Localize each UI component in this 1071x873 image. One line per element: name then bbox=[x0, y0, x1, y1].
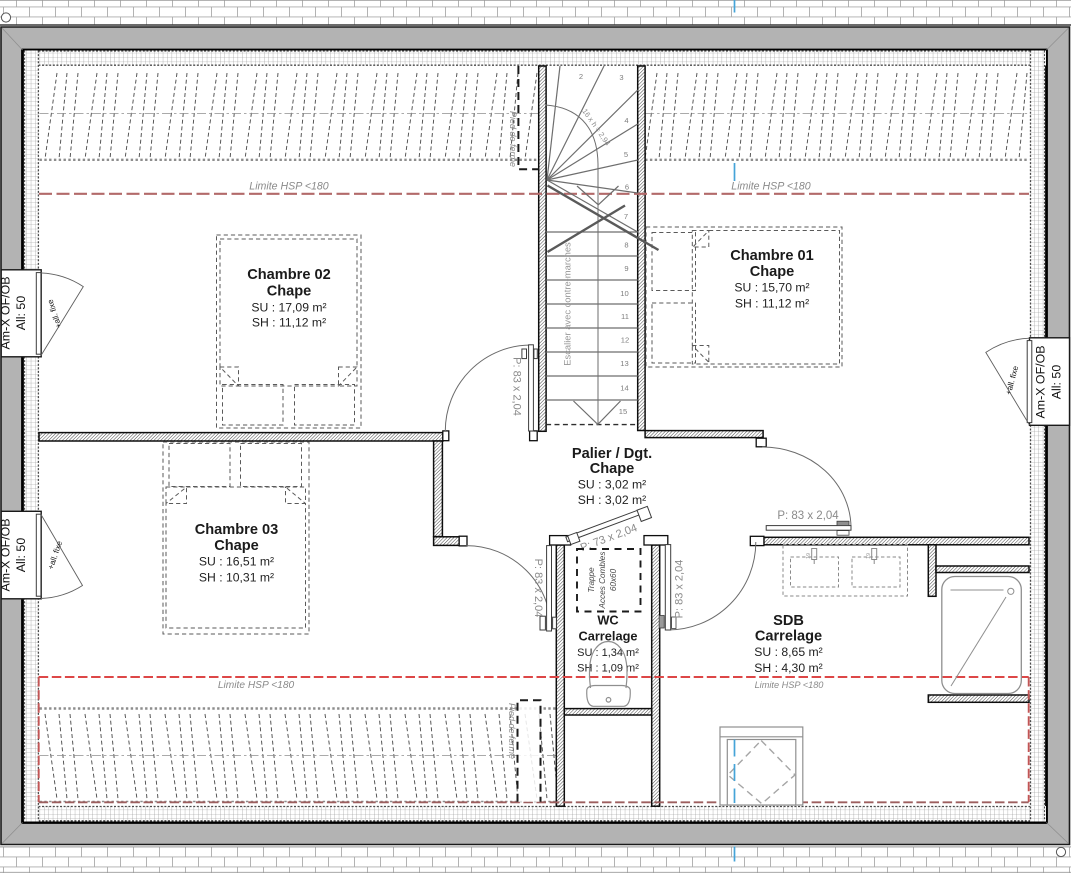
svg-text:SH : 10,31 m²: SH : 10,31 m² bbox=[199, 571, 274, 585]
svg-text:11: 11 bbox=[621, 312, 629, 321]
svg-text:Limite HSP <180: Limite HSP <180 bbox=[218, 680, 295, 691]
svg-text:Pied de ferme: Pied de ferme bbox=[507, 703, 517, 759]
svg-text:6: 6 bbox=[625, 183, 629, 192]
svg-text:Am-X OF/OB: Am-X OF/OB bbox=[0, 277, 13, 350]
svg-text:Chape: Chape bbox=[267, 284, 312, 300]
svg-text:Trappe: Trappe bbox=[587, 567, 596, 593]
svg-text:Carrelage: Carrelage bbox=[755, 629, 822, 645]
svg-text:9: 9 bbox=[624, 264, 628, 273]
svg-text:SU : 3,02 m²: SU : 3,02 m² bbox=[578, 478, 646, 492]
svg-text:Limite HSP <180: Limite HSP <180 bbox=[755, 680, 825, 690]
svg-text:Palier / Dgt.: Palier / Dgt. bbox=[572, 446, 652, 462]
svg-text:7: 7 bbox=[624, 212, 628, 221]
svg-text:8: 8 bbox=[624, 241, 628, 250]
svg-text:4: 4 bbox=[624, 116, 628, 125]
svg-text:Pied de ferme: Pied de ferme bbox=[508, 111, 518, 167]
svg-text:5: 5 bbox=[624, 150, 628, 159]
svg-text:SH : 3,02 m²: SH : 3,02 m² bbox=[578, 493, 646, 507]
svg-text:Acces Combles: Acces Combles bbox=[598, 552, 607, 610]
svg-text:SU : 1,34 m²: SU : 1,34 m² bbox=[577, 647, 639, 659]
svg-text:SU : 17,09 m²: SU : 17,09 m² bbox=[251, 301, 326, 315]
svg-text:Chape: Chape bbox=[590, 461, 635, 477]
svg-text:14: 14 bbox=[620, 384, 628, 393]
svg-text:P: 83 x 2,04: P: 83 x 2,04 bbox=[777, 510, 839, 522]
svg-text:Am-X OF/OB: Am-X OF/OB bbox=[1034, 346, 1048, 419]
svg-text:Chambre 03: Chambre 03 bbox=[195, 522, 279, 538]
svg-text:P: 83 x 2,04: P: 83 x 2,04 bbox=[511, 357, 523, 416]
svg-text:Limite HSP <180: Limite HSP <180 bbox=[249, 181, 329, 193]
svg-text:SH : 4,30 m²: SH : 4,30 m² bbox=[754, 661, 822, 675]
svg-text:Chape: Chape bbox=[214, 538, 259, 554]
svg-text:2: 2 bbox=[579, 72, 583, 81]
svg-text:12: 12 bbox=[621, 336, 629, 345]
svg-text:Chape: Chape bbox=[750, 264, 795, 280]
svg-text:WC: WC bbox=[597, 613, 618, 628]
svg-text:SU : 15,70 m²: SU : 15,70 m² bbox=[734, 281, 809, 295]
svg-text:Limite HSP <180: Limite HSP <180 bbox=[731, 181, 811, 193]
svg-text:SH : 11,12 m²: SH : 11,12 m² bbox=[735, 297, 809, 311]
svg-text:19: 19 bbox=[866, 553, 872, 559]
svg-text:19: 19 bbox=[806, 553, 812, 559]
svg-text:13: 13 bbox=[620, 359, 628, 368]
svg-text:15: 15 bbox=[619, 407, 627, 416]
svg-text:All: 50: All: 50 bbox=[14, 296, 28, 331]
svg-text:SDB: SDB bbox=[773, 613, 804, 629]
svg-text:Escalier avec contre-marches: Escalier avec contre-marches bbox=[562, 242, 573, 366]
svg-text:SU : 16,51 m²: SU : 16,51 m² bbox=[199, 555, 274, 569]
svg-text:All: 50: All: 50 bbox=[1050, 365, 1064, 400]
svg-text:SU : 8,65 m²: SU : 8,65 m² bbox=[754, 645, 822, 659]
svg-text:Chambre 02: Chambre 02 bbox=[247, 267, 331, 283]
svg-text:P: 83 x 2,04: P: 83 x 2,04 bbox=[532, 559, 544, 618]
svg-text:Chambre 01: Chambre 01 bbox=[730, 248, 814, 264]
svg-text:10: 10 bbox=[620, 289, 628, 298]
svg-text:SH : 1,09 m²: SH : 1,09 m² bbox=[577, 663, 639, 675]
svg-text:P: 83 x 2,04: P: 83 x 2,04 bbox=[674, 560, 686, 619]
svg-text:3: 3 bbox=[619, 73, 623, 82]
svg-text:Am-X OF/OB: Am-X OF/OB bbox=[0, 519, 13, 592]
svg-text:SH : 11,12 m²: SH : 11,12 m² bbox=[252, 316, 326, 330]
svg-text:All: 50: All: 50 bbox=[14, 538, 28, 573]
svg-text:60x60: 60x60 bbox=[609, 568, 618, 591]
